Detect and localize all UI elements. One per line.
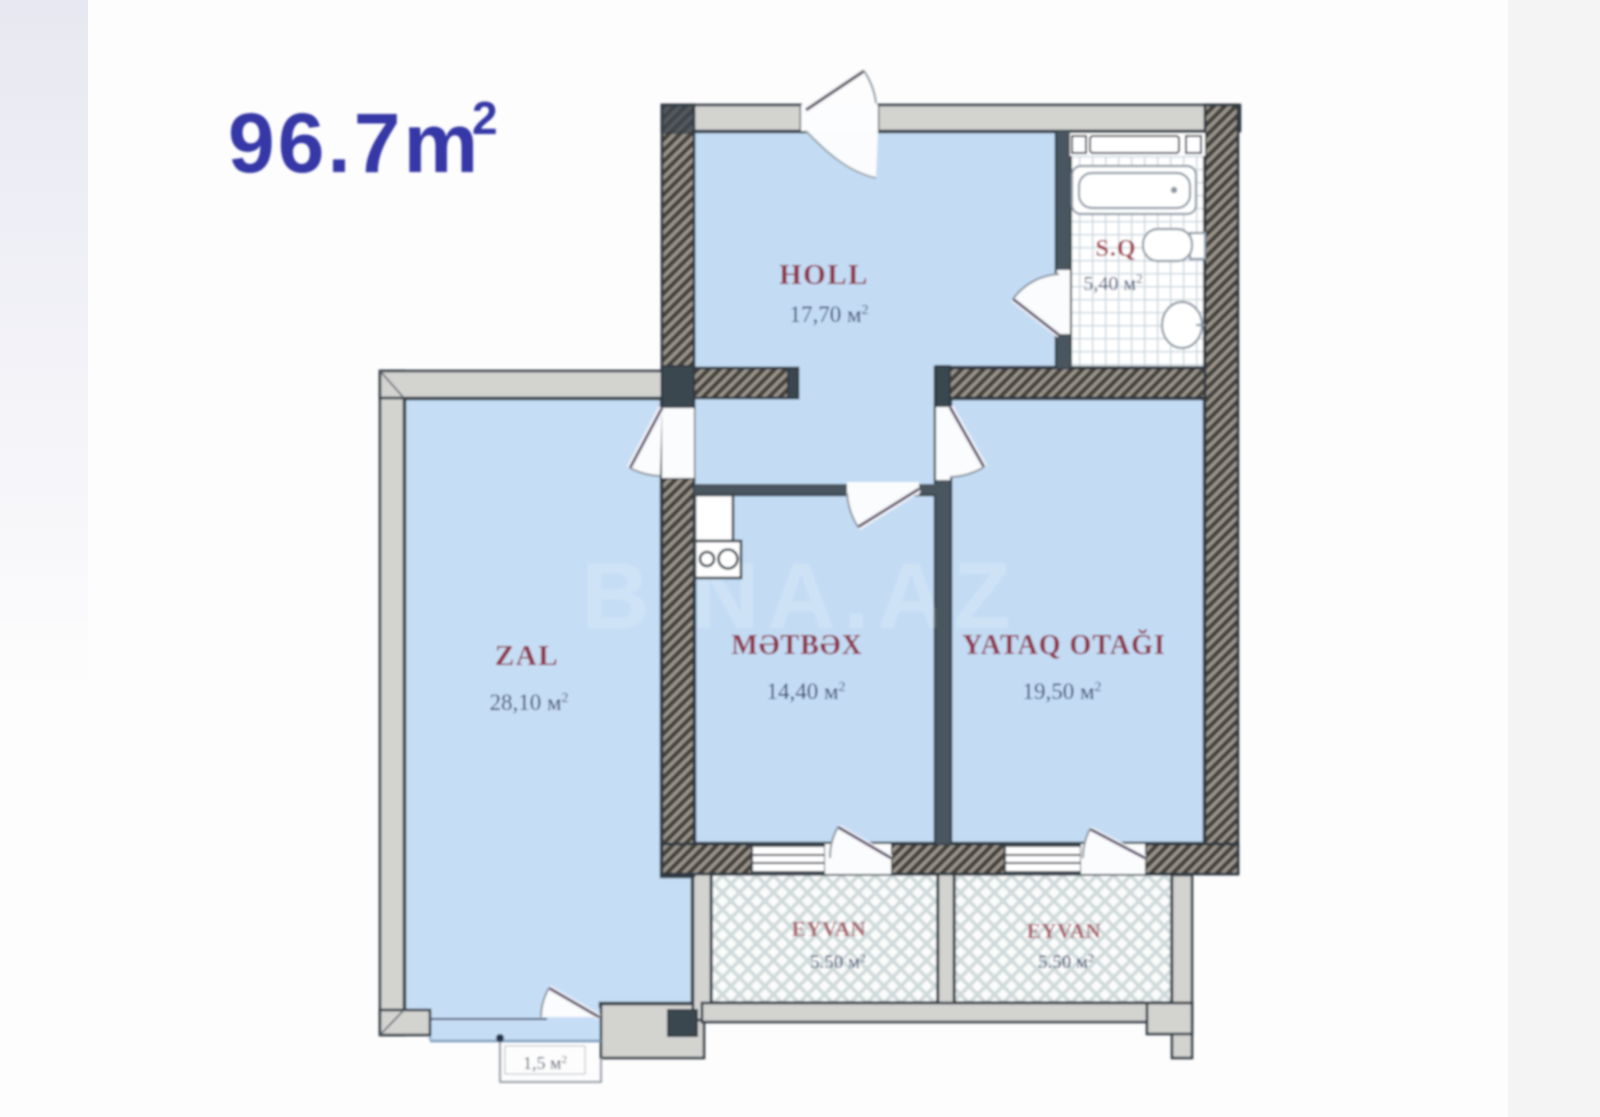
svg-text:2: 2	[472, 92, 498, 144]
svg-text:ZAL: ZAL	[495, 640, 559, 672]
svg-text:5,40 м2: 5,40 м2	[1083, 271, 1142, 295]
svg-text:14,40 м2: 14,40 м2	[766, 679, 845, 704]
svg-text:28,10 м2: 28,10 м2	[489, 690, 568, 715]
svg-text:EYVAN: EYVAN	[1027, 919, 1101, 943]
svg-text:17,70 м2: 17,70 м2	[789, 302, 868, 327]
svg-text:MƏTBƏX: MƏTBƏX	[731, 630, 862, 661]
svg-text:YATAQ OTAĞI: YATAQ OTAĞI	[962, 630, 1166, 661]
svg-text:S.Q: S.Q	[1095, 236, 1136, 262]
svg-text:96.7m: 96.7m	[228, 96, 481, 190]
svg-text:19,50 м2: 19,50 м2	[1022, 679, 1101, 704]
svg-text:EYVAN: EYVAN	[792, 917, 866, 941]
svg-text:5.50 м2: 5.50 м2	[810, 951, 866, 973]
svg-text:HOLL: HOLL	[779, 259, 869, 291]
svg-text:5.50 м2: 5.50 м2	[1038, 951, 1094, 973]
svg-text:1,5 м2: 1,5 м2	[523, 1053, 567, 1073]
